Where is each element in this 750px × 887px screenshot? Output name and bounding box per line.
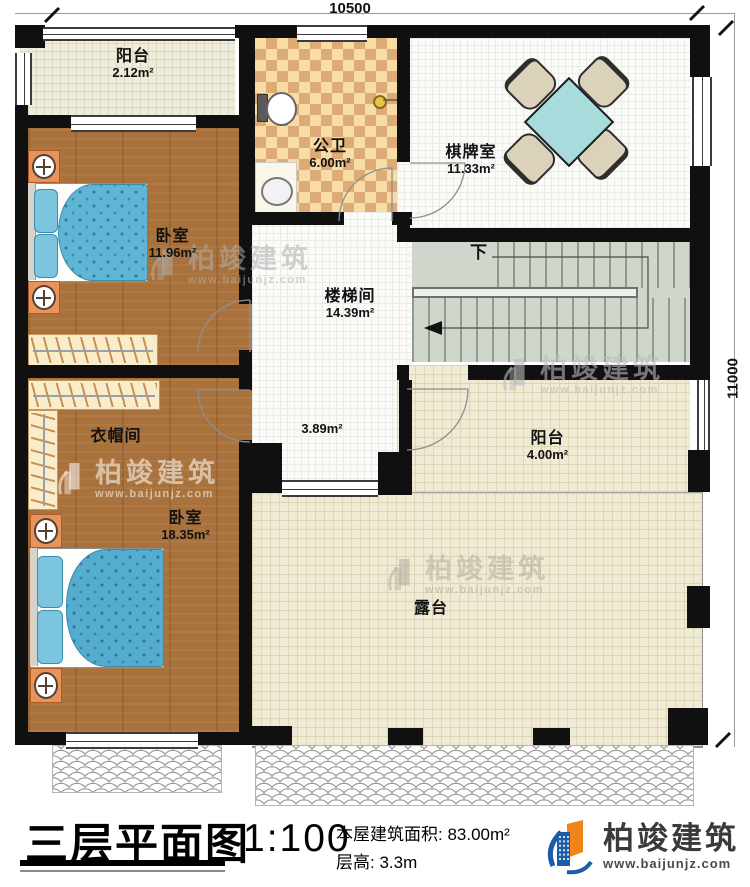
nightstand: [30, 668, 62, 703]
stair-flight-upper: [497, 242, 690, 288]
lamp-icon: [32, 285, 56, 310]
wall: [239, 38, 255, 225]
room-label-bedroom-2: 卧室 18.35m²: [138, 510, 233, 543]
room-label-balcony-2: 阳台 4.00m²: [500, 430, 595, 463]
pillow: [34, 234, 58, 278]
wall-pillar: [240, 443, 282, 493]
sink: [261, 177, 293, 206]
lamp-icon: [32, 154, 56, 179]
lamp-icon: [34, 672, 58, 699]
room-label-terrace: 露台: [400, 600, 462, 618]
bed-blanket: [66, 549, 164, 667]
room-floor-balcony-2: [397, 365, 690, 492]
wall: [15, 732, 68, 745]
wall: [15, 365, 252, 378]
stair-handrail: [412, 287, 638, 298]
wall: [239, 225, 252, 304]
drawing-scale: 1:100: [243, 817, 351, 861]
wall-pillar: [668, 708, 708, 745]
room-label-bathroom: 公卫 6.00m²: [280, 138, 380, 171]
wall: [239, 212, 344, 225]
pillow: [37, 610, 63, 664]
wall-pillar: [688, 450, 710, 492]
room-label-chess-room: 棋牌室 11.33m²: [425, 144, 517, 177]
building-area-line: 本屋建筑面积: 83.00m²: [336, 820, 510, 845]
wall: [468, 365, 690, 380]
brand-logo-icon: [543, 816, 595, 876]
wardrobe: [28, 410, 58, 510]
wall-pillar: [252, 726, 292, 745]
roof-tiles-left: [52, 745, 222, 793]
stair-flight-lower: [412, 298, 690, 362]
room-floor-terrace: [252, 492, 703, 748]
window: [692, 77, 712, 166]
window: [43, 27, 235, 41]
roof-tiles-terrace: [255, 745, 694, 806]
brand-url: www.baijunjz.com: [603, 857, 739, 870]
nightstand: [28, 150, 60, 183]
wardrobe: [28, 380, 160, 410]
wall: [397, 38, 410, 162]
room-label-balcony-1: 阳台 2.12m²: [83, 48, 183, 81]
window: [66, 732, 198, 749]
dimension-right-value: 11000: [725, 346, 742, 412]
lamp-icon: [34, 518, 58, 544]
floor-plan-sheet: 10500 11000: [0, 0, 750, 887]
window: [297, 25, 367, 42]
wall: [15, 105, 28, 745]
railing: [697, 380, 710, 450]
window: [15, 53, 32, 105]
shower-fixture: [373, 95, 387, 109]
wall: [399, 380, 412, 452]
brand-logo: 柏竣建筑 www.baijunjz.com: [543, 816, 739, 876]
wall: [365, 25, 710, 38]
window: [282, 480, 378, 497]
wall: [15, 115, 73, 128]
floor-height-line: 层高: 3.3m: [336, 848, 417, 873]
wall-pillar: [687, 586, 710, 628]
wall-pillar: [378, 452, 412, 495]
pillow: [34, 189, 58, 233]
wall: [397, 365, 409, 380]
title-underline-thin: [20, 870, 225, 872]
wall: [690, 38, 710, 77]
wall: [235, 25, 297, 38]
brand-name: 柏竣建筑: [603, 823, 739, 854]
wall: [15, 25, 45, 48]
toilet-bowl: [266, 92, 297, 126]
pillow: [37, 556, 63, 608]
window: [71, 115, 196, 132]
nightstand: [28, 281, 60, 314]
title-underline: [20, 860, 225, 866]
wall: [690, 166, 710, 380]
wall: [397, 218, 410, 242]
room-label-stairwell: 楼梯间 14.39m²: [300, 288, 400, 321]
closet: [28, 334, 158, 366]
stairs-down-label: 下: [470, 238, 487, 263]
room-label-cloakroom: 衣帽间: [72, 428, 160, 446]
wall: [239, 378, 252, 390]
wall-pillar: [533, 728, 570, 745]
dimension-top-value: 10500: [315, 0, 385, 17]
wall-pillar: [388, 728, 423, 745]
nightstand: [30, 514, 62, 548]
wall: [410, 228, 690, 242]
room-label-corridor-area: 3.89m²: [282, 422, 362, 437]
room-label-bedroom-1: 卧室 11.96m²: [125, 228, 220, 261]
